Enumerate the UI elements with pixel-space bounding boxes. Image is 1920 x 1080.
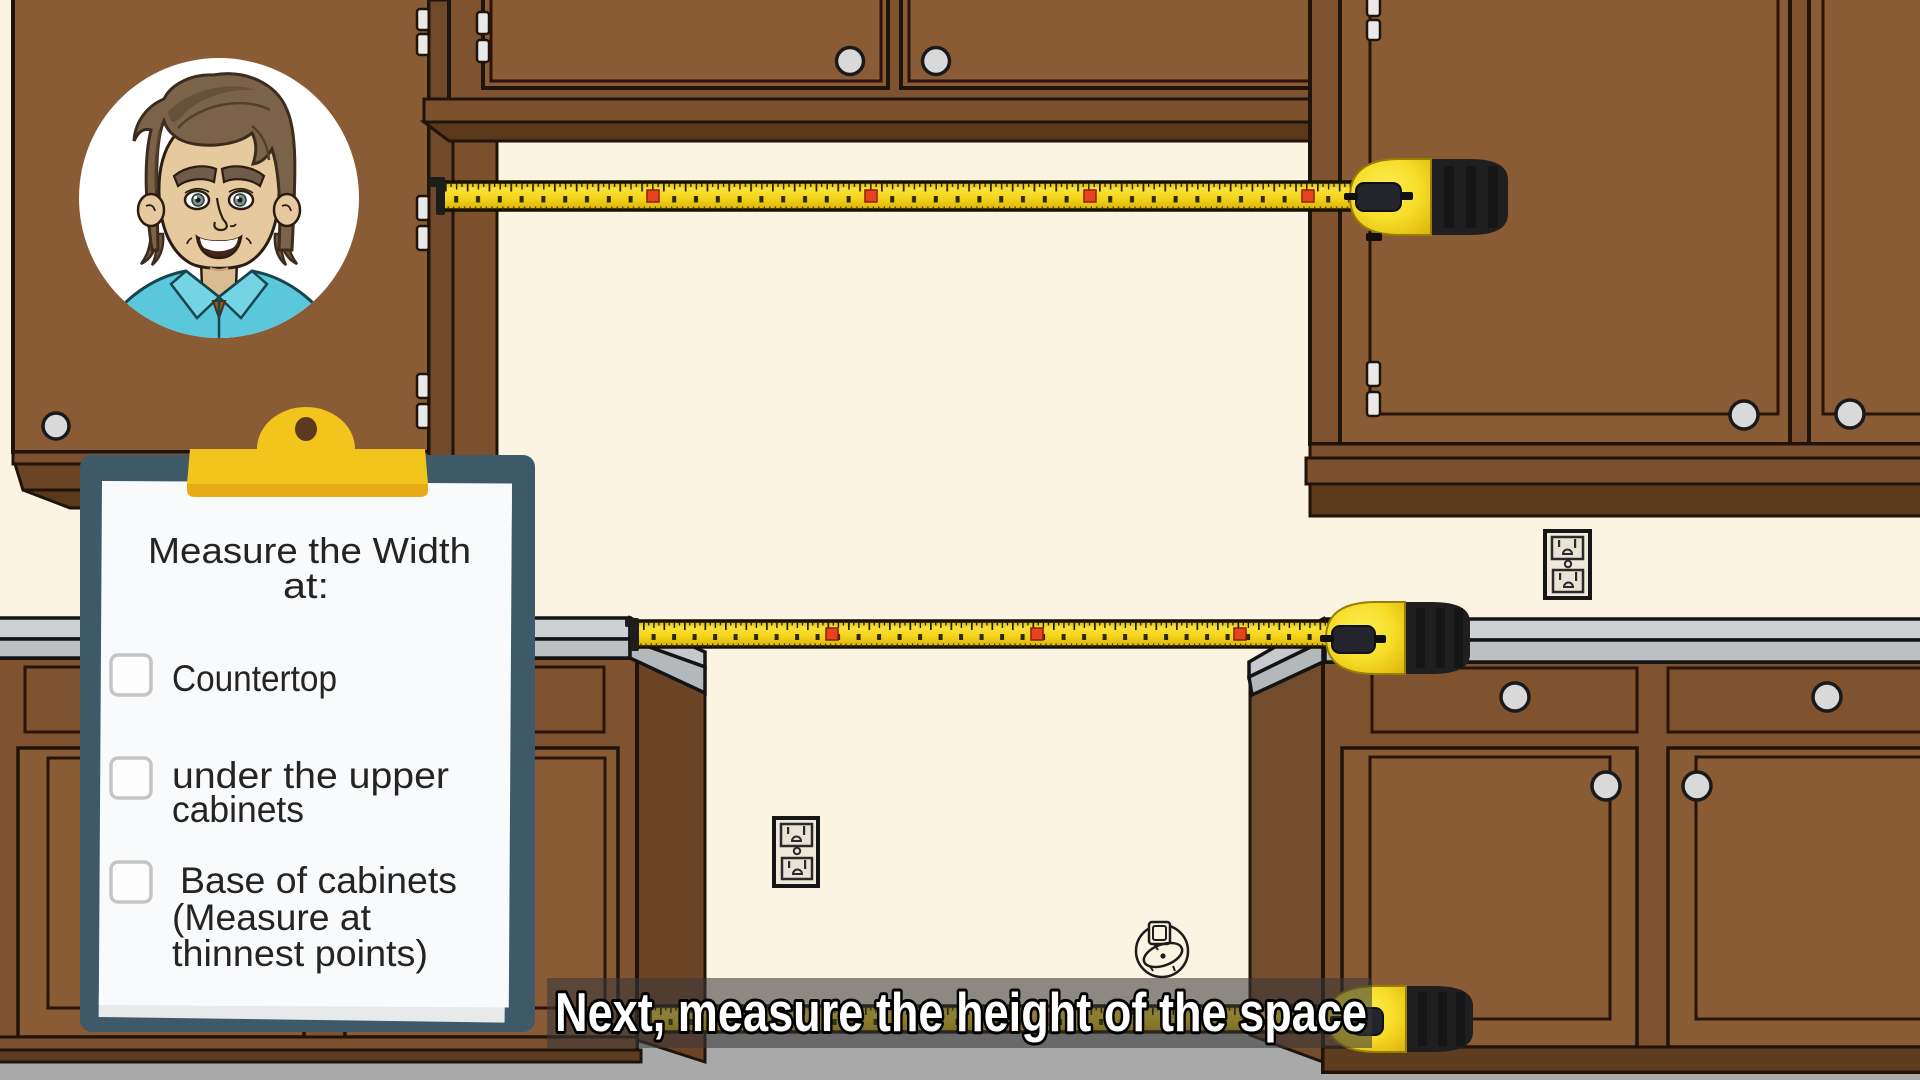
- svg-text:Next, measure the height of th: Next, measure the height of the space: [555, 981, 1367, 1043]
- svg-text:(Measure at: (Measure at: [172, 897, 372, 938]
- svg-text:thinnest points): thinnest points): [172, 933, 428, 974]
- svg-text:cabinets: cabinets: [172, 789, 304, 830]
- svg-text:at:: at:: [283, 565, 329, 606]
- svg-text:Countertop: Countertop: [172, 658, 337, 699]
- svg-text:Base of cabinets: Base of cabinets: [180, 860, 457, 901]
